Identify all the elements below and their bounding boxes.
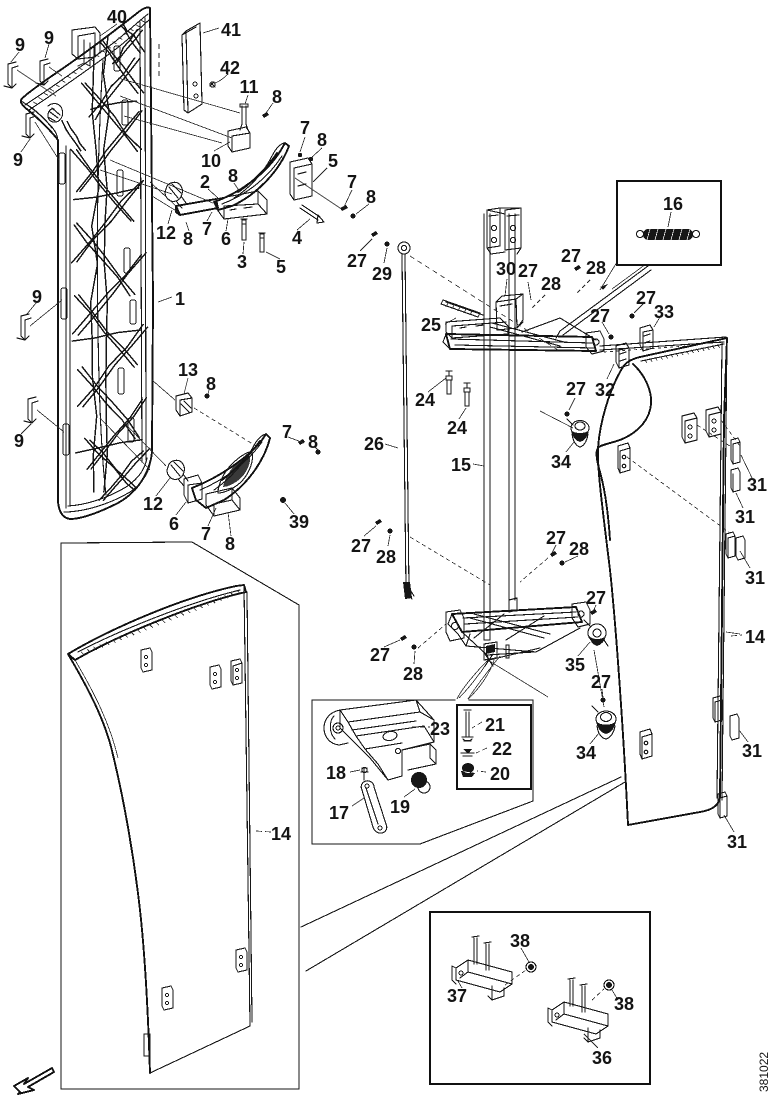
svg-text:31: 31 xyxy=(727,832,747,852)
svg-text:27: 27 xyxy=(546,528,566,548)
svg-text:5: 5 xyxy=(328,151,338,171)
svg-text:9: 9 xyxy=(32,287,42,307)
svg-text:27: 27 xyxy=(590,306,610,326)
svg-text:37: 37 xyxy=(447,986,467,1006)
svg-text:15: 15 xyxy=(451,455,471,475)
svg-text:41: 41 xyxy=(221,20,241,40)
svg-text:32: 32 xyxy=(595,380,615,400)
svg-text:28: 28 xyxy=(569,539,589,559)
svg-text:14: 14 xyxy=(745,627,765,647)
svg-text:8: 8 xyxy=(317,130,327,150)
svg-text:24: 24 xyxy=(415,390,435,410)
svg-text:18: 18 xyxy=(326,763,346,783)
svg-text:22: 22 xyxy=(492,739,512,759)
svg-text:12: 12 xyxy=(156,223,176,243)
svg-text:35: 35 xyxy=(565,655,585,675)
svg-text:31: 31 xyxy=(742,741,762,761)
svg-text:34: 34 xyxy=(576,743,596,763)
svg-text:34: 34 xyxy=(551,452,571,472)
svg-text:8: 8 xyxy=(308,432,318,452)
svg-text:27: 27 xyxy=(561,246,581,266)
svg-text:40: 40 xyxy=(107,7,127,27)
svg-text:9: 9 xyxy=(15,35,25,55)
svg-text:31: 31 xyxy=(745,568,765,588)
svg-text:27: 27 xyxy=(586,588,606,608)
svg-text:1: 1 xyxy=(175,289,185,309)
svg-text:8: 8 xyxy=(228,166,238,186)
svg-text:16: 16 xyxy=(663,194,683,214)
svg-text:5: 5 xyxy=(276,257,286,277)
svg-text:24: 24 xyxy=(447,418,467,438)
svg-text:28: 28 xyxy=(586,258,606,278)
svg-text:381022: 381022 xyxy=(757,1052,771,1092)
svg-text:7: 7 xyxy=(300,118,310,138)
svg-text:6: 6 xyxy=(169,514,179,534)
svg-text:27: 27 xyxy=(370,645,390,665)
svg-text:9: 9 xyxy=(13,150,23,170)
svg-text:38: 38 xyxy=(614,994,634,1014)
svg-text:26: 26 xyxy=(364,434,384,454)
svg-text:30: 30 xyxy=(496,259,516,279)
svg-text:27: 27 xyxy=(347,251,367,271)
svg-text:36: 36 xyxy=(592,1048,612,1068)
svg-text:8: 8 xyxy=(366,187,376,207)
svg-text:27: 27 xyxy=(591,672,611,692)
svg-text:27: 27 xyxy=(351,536,371,556)
svg-text:28: 28 xyxy=(403,664,423,684)
svg-text:2: 2 xyxy=(200,172,210,192)
svg-text:8: 8 xyxy=(225,534,235,554)
svg-text:8: 8 xyxy=(206,374,216,394)
svg-text:39: 39 xyxy=(289,512,309,532)
svg-text:13: 13 xyxy=(178,360,198,380)
svg-text:31: 31 xyxy=(735,507,755,527)
svg-text:23: 23 xyxy=(430,719,450,739)
svg-text:29: 29 xyxy=(372,264,392,284)
svg-text:20: 20 xyxy=(490,764,510,784)
svg-text:4: 4 xyxy=(292,228,302,248)
svg-text:9: 9 xyxy=(14,431,24,451)
svg-text:11: 11 xyxy=(239,77,258,97)
svg-text:17: 17 xyxy=(329,803,349,823)
svg-text:12: 12 xyxy=(143,494,163,514)
svg-text:7: 7 xyxy=(282,422,292,442)
svg-text:3: 3 xyxy=(237,252,247,272)
svg-text:38: 38 xyxy=(510,931,530,951)
svg-text:6: 6 xyxy=(221,229,231,249)
svg-text:8: 8 xyxy=(183,229,193,249)
svg-text:27: 27 xyxy=(518,261,538,281)
svg-text:9: 9 xyxy=(44,28,54,48)
svg-text:33: 33 xyxy=(654,302,674,322)
svg-text:7: 7 xyxy=(202,219,212,239)
svg-text:7: 7 xyxy=(347,172,357,192)
svg-text:10: 10 xyxy=(201,151,221,171)
svg-text:21: 21 xyxy=(485,715,505,735)
svg-text:25: 25 xyxy=(421,315,441,335)
svg-text:8: 8 xyxy=(272,87,282,107)
svg-text:28: 28 xyxy=(376,547,396,567)
svg-text:42: 42 xyxy=(220,58,240,78)
svg-text:7: 7 xyxy=(201,524,211,544)
svg-text:31: 31 xyxy=(747,475,767,495)
svg-text:27: 27 xyxy=(566,379,586,399)
svg-text:28: 28 xyxy=(541,274,561,294)
svg-text:19: 19 xyxy=(390,797,410,817)
svg-text:14: 14 xyxy=(271,824,291,844)
